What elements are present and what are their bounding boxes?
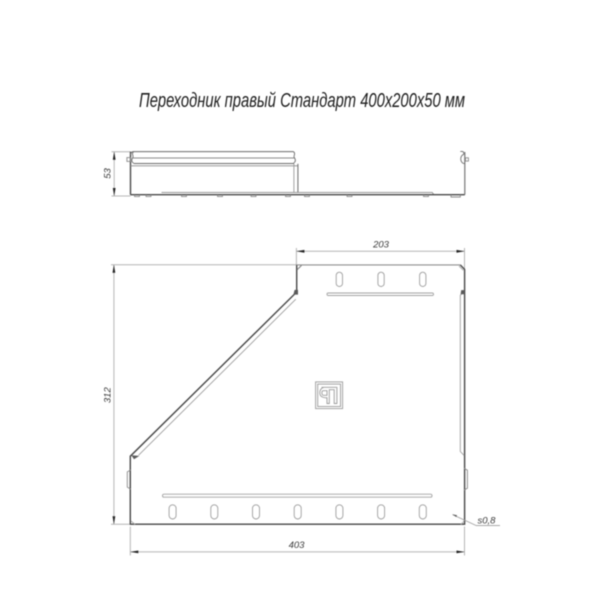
svg-text:Переходник правый Стандарт 400: Переходник правый Стандарт 400х200х50 мм [139, 90, 465, 112]
svg-text:312: 312 [102, 387, 113, 404]
svg-text:s0,8: s0,8 [478, 516, 497, 527]
svg-text:203: 203 [372, 240, 390, 251]
svg-text:53: 53 [103, 168, 114, 179]
svg-text:403: 403 [289, 540, 306, 551]
